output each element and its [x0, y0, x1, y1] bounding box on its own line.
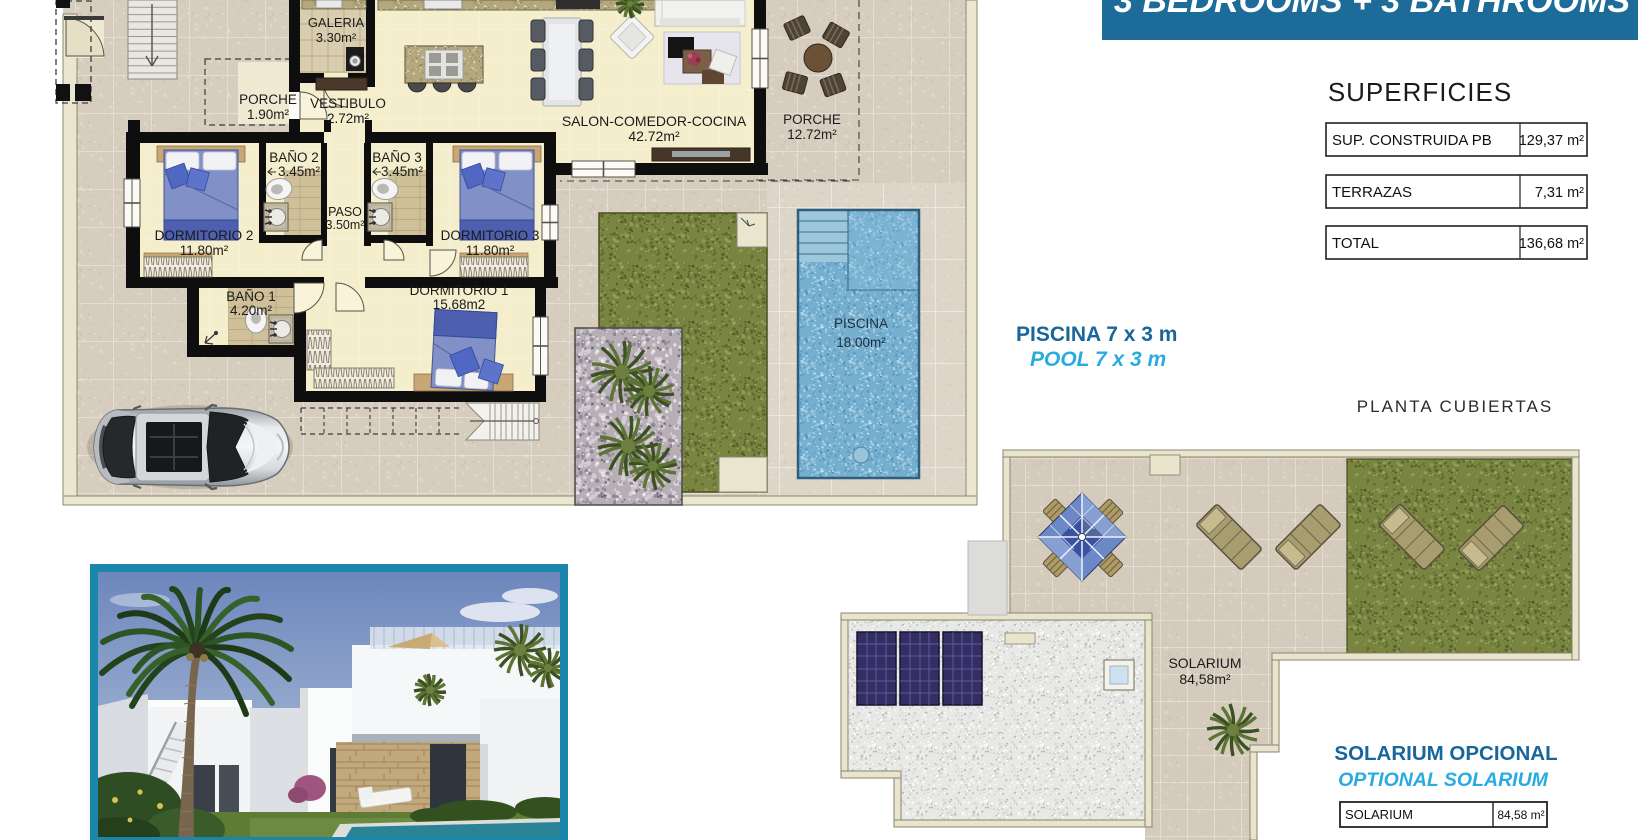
svg-text:SOLARIUM: SOLARIUM — [1345, 807, 1413, 822]
svg-text:OPTIONAL SOLARIUM: OPTIONAL SOLARIUM — [1338, 769, 1549, 791]
svg-text:84,58m²: 84,58m² — [1179, 671, 1231, 687]
svg-text:42.72m²: 42.72m² — [628, 128, 680, 144]
svg-text:15.68m2: 15.68m2 — [433, 297, 486, 312]
svg-text:4.20m²: 4.20m² — [230, 303, 273, 318]
svg-text:7,31 m²: 7,31 m² — [1535, 185, 1584, 201]
svg-text:3.50m²: 3.50m² — [326, 218, 365, 232]
svg-text:BAÑO 2: BAÑO 2 — [269, 150, 319, 165]
svg-text:DORMITORIO 2: DORMITORIO 2 — [155, 228, 254, 243]
svg-text:1.90m²: 1.90m² — [247, 107, 290, 122]
svg-text:18.00m²: 18.00m² — [836, 335, 886, 350]
svg-text:PORCHE: PORCHE — [239, 92, 297, 107]
svg-text:136,68 m²: 136,68 m² — [1519, 236, 1584, 252]
svg-text:SUPERFICIES: SUPERFICIES — [1328, 77, 1512, 107]
svg-text:3 BEDROOMS + 3 BATHROOMS: 3 BEDROOMS + 3 BATHROOMS — [1114, 0, 1630, 20]
svg-text:SALON-COMEDOR-COCINA: SALON-COMEDOR-COCINA — [562, 113, 747, 129]
svg-text:PISCINA 7 x 3 m: PISCINA 7 x 3 m — [1016, 323, 1177, 346]
svg-text:2.72m²: 2.72m² — [327, 111, 370, 126]
svg-text:TERRAZAS: TERRAZAS — [1332, 184, 1412, 201]
svg-text:BAÑO 1: BAÑO 1 — [226, 289, 276, 304]
svg-text:PLANTA CUBIERTAS: PLANTA CUBIERTAS — [1357, 397, 1553, 416]
svg-text:SOLARIUM: SOLARIUM — [1168, 655, 1241, 671]
svg-text:PASO: PASO — [328, 205, 362, 219]
svg-text:VESTIBULO: VESTIBULO — [310, 96, 386, 111]
svg-text:POOL 7 x 3 m: POOL 7 x 3 m — [1030, 348, 1166, 371]
svg-text:3.45m²: 3.45m² — [278, 164, 321, 179]
svg-text:TOTAL: TOTAL — [1332, 235, 1379, 252]
svg-text:11.80m²: 11.80m² — [466, 243, 515, 258]
svg-text:PORCHE: PORCHE — [783, 112, 841, 127]
svg-text:BAÑO 3: BAÑO 3 — [372, 150, 422, 165]
svg-text:129,37 m²: 129,37 m² — [1519, 133, 1584, 149]
svg-text:11.80m²: 11.80m² — [180, 243, 229, 258]
svg-text:DORMITORIO 3: DORMITORIO 3 — [441, 228, 540, 243]
svg-text:12.72m²: 12.72m² — [787, 127, 837, 142]
svg-text:DORMITORIO 1: DORMITORIO 1 — [410, 283, 509, 298]
svg-text:PISCINA: PISCINA — [834, 316, 888, 331]
svg-text:GALERIA: GALERIA — [308, 15, 365, 30]
svg-text:3.30m²: 3.30m² — [316, 30, 357, 45]
svg-text:SOLARIUM OPCIONAL: SOLARIUM OPCIONAL — [1334, 742, 1557, 765]
svg-text:SUP. CONSTRUIDA PB: SUP. CONSTRUIDA PB — [1332, 132, 1492, 149]
svg-text:3.45m²: 3.45m² — [381, 164, 424, 179]
svg-text:84,58 m²: 84,58 m² — [1497, 808, 1544, 822]
